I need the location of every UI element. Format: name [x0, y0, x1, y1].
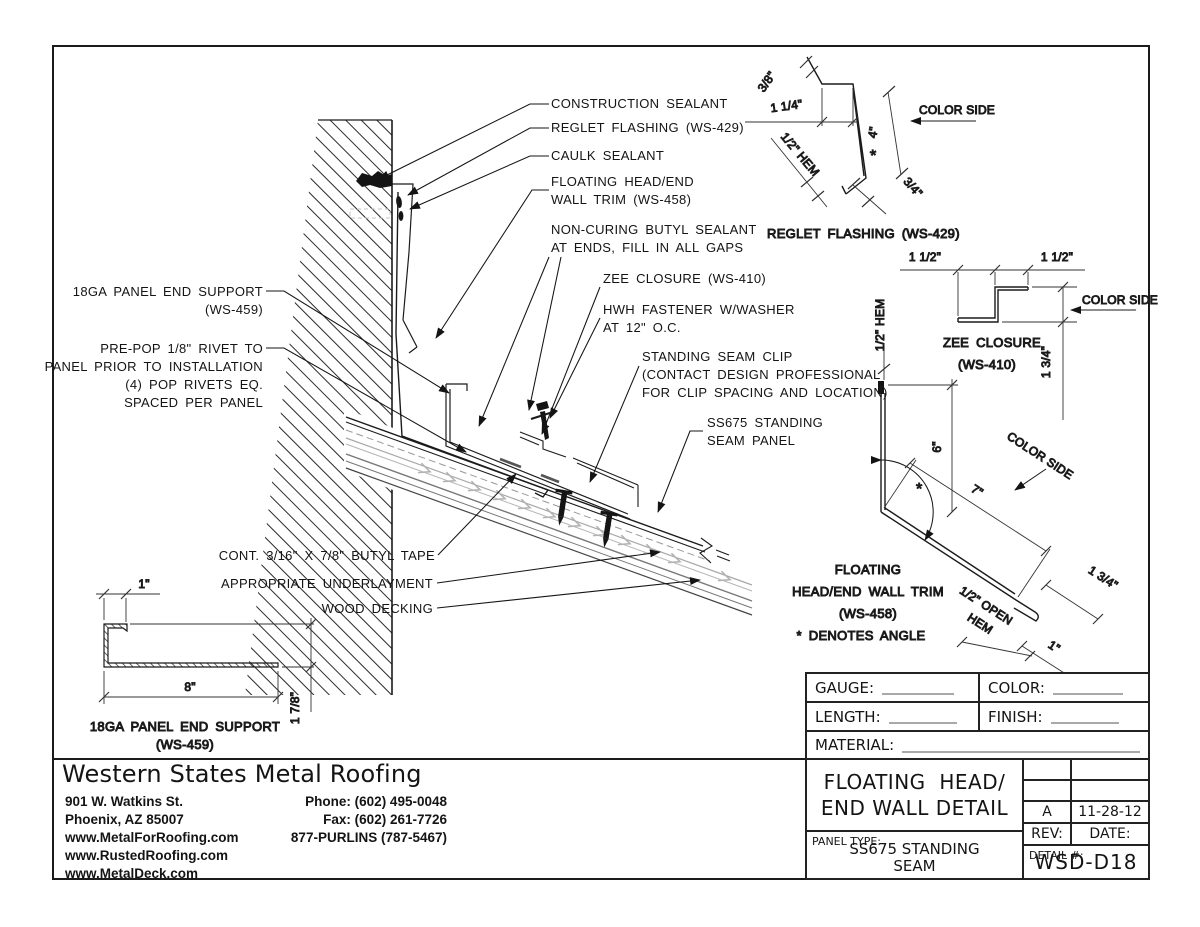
length-field: LENGTH:	[805, 701, 980, 732]
length-blank	[889, 709, 957, 724]
company-phone-block: Phone: (602) 495-0048 Fax: (602) 261-772…	[280, 793, 447, 847]
trim-detail-title-2: HEAD/END WALL TRIM	[792, 584, 944, 599]
panel-type-label: PANEL TYPE:	[812, 835, 881, 848]
callout-seam-panel-1: SS675 STANDING	[707, 415, 823, 430]
zee-dim-web: 1 3/4"	[1039, 346, 1053, 378]
company-website-3: www.MetalDeck.com	[65, 865, 239, 883]
callout-reglet-flashing: REGLET FLASHING (WS-429)	[551, 120, 744, 135]
reglet-detail-title: REGLET FLASHING (WS-429)	[767, 226, 960, 241]
reglet-dim-4: 4"	[865, 126, 881, 140]
material-blank	[902, 738, 1140, 753]
trim-detail: 1/2" HEM 6" 7" * COLOR SIDE 1 3/4" 1" 1/…	[792, 299, 1120, 683]
gauge-label: GAUGE:	[815, 679, 874, 697]
callout-butyl-sealant-2: AT ENDS, FILL IN ALL GAPS	[551, 240, 743, 255]
panel-top-line	[346, 417, 703, 546]
trim-detail-title-3: (WS-458)	[839, 606, 897, 621]
color-label: COLOR:	[988, 679, 1045, 697]
date-empty-cell-1	[1070, 758, 1150, 781]
callout-seam-clip-2: (CONTACT DESIGN PROFESSIONAL	[642, 367, 881, 382]
trim-asterisk: *	[916, 481, 922, 498]
support-dim-1-7-8: 1 7/8"	[288, 692, 302, 724]
zee-detail-title-1: ZEE CLOSURE	[943, 335, 1041, 350]
trim-dim-1-3-4: 1 3/4"	[1086, 563, 1121, 592]
length-label: LENGTH:	[815, 708, 881, 726]
trim-dim-7: 7"	[969, 482, 986, 500]
trim-detail-title-1: FLOATING	[835, 562, 901, 577]
callout-caulk-sealant: CAULK SEALANT	[551, 148, 664, 163]
rev-header-cell: REV:	[1022, 822, 1072, 846]
reglet-dim-3-4: 3/4"	[900, 175, 925, 201]
callout-labels: CONSTRUCTION SEALANT REGLET FLASHING (WS…	[45, 96, 888, 616]
reglet-dim-1-1-4: 1 1/4"	[770, 97, 804, 115]
callout-seam-clip-1: STANDING SEAM CLIP	[642, 349, 793, 364]
material-field: MATERIAL:	[805, 730, 1150, 760]
callout-rivet-1: PRE-POP 1/8" RIVET TO	[100, 341, 263, 356]
company-fax: Fax: (602) 261-7726	[280, 811, 447, 829]
support-detail-title-2: (WS-459)	[156, 737, 214, 752]
callout-floating-trim-2: WALL TRIM (WS-458)	[551, 192, 691, 207]
gauge-field: GAUGE:	[805, 672, 980, 703]
reglet-detail: 3/8" 1 1/4" 1/2" HEM 4" * 3/4" COLOR SID…	[745, 56, 995, 241]
callout-hwh-fastener-2: AT 12" O.C.	[603, 320, 681, 335]
callout-seam-panel-2: SEAM PANEL	[707, 433, 795, 448]
trim-color-side: COLOR SIDE	[1004, 429, 1075, 482]
drawing-title: FLOATING HEAD/ END WALL DETAIL	[805, 758, 1024, 832]
trim-dim-half-hem: 1/2" HEM	[873, 299, 887, 352]
zee-detail: 1 1/2" 1 1/2" 1 3/4" COLOR SIDE ZEE CLOS…	[900, 250, 1158, 420]
hwh-fastener	[531, 401, 553, 440]
callout-rivet-4: SPACED PER PANEL	[124, 395, 263, 410]
zee-closure-piece	[520, 432, 566, 457]
callout-construction-sealant: CONSTRUCTION SEALANT	[551, 96, 728, 111]
reglet-color-side: COLOR SIDE	[919, 103, 995, 117]
title-block: GAUGE: COLOR: LENGTH: FINISH: MATERIAL: …	[805, 672, 1150, 880]
panel-type-value-2: SEAM	[893, 858, 935, 875]
company-website-1: www.MetalForRoofing.com	[65, 829, 239, 847]
zee-detail-title-2: (WS-410)	[958, 357, 1016, 372]
callout-butyl-tape: CONT. 3/16" X 7/8" BUTYL TAPE	[219, 548, 435, 563]
callout-rivet-3: (4) POP RIVETS EQ.	[125, 377, 263, 392]
reglet-dim-3-8: 3/8"	[755, 69, 779, 95]
trim-detail-title-4: * DENOTES ANGLE	[797, 628, 926, 643]
panel-stub	[716, 550, 730, 561]
rev-value-cell: A	[1022, 800, 1072, 824]
detail-number-field: DETAIL #: WSD-D18	[1022, 844, 1150, 880]
company-name: Western States Metal Roofing	[62, 760, 422, 788]
company-website-2: www.RustedRoofing.com	[65, 847, 239, 865]
color-field: COLOR:	[978, 672, 1150, 703]
drawing-title-line-2: END WALL DETAIL	[821, 795, 1008, 821]
rev-empty-cell-2	[1022, 779, 1072, 802]
drawing-sheet: CONSTRUCTION SEALANT REGLET FLASHING (WS…	[0, 0, 1200, 927]
color-blank	[1053, 680, 1123, 695]
rev-empty-cell-1	[1022, 758, 1072, 781]
seam-dash-line	[346, 430, 710, 561]
caulk-blob-1	[395, 196, 402, 209]
callout-zee-closure: ZEE CLOSURE (WS-410)	[603, 271, 766, 286]
zee-dim-right: 1 1/2"	[1041, 250, 1073, 264]
material-label: MATERIAL:	[815, 736, 894, 754]
callout-underlayment: APPROPRIATE UNDERLAYMENT	[221, 576, 433, 591]
trim-dim-6: 6"	[930, 441, 944, 452]
company-address-block: 901 W. Watkins St. Phoenix, AZ 85007 www…	[65, 793, 239, 883]
callout-end-support-2: (WS-459)	[205, 302, 263, 317]
callout-hwh-fastener-1: HWH FASTENER W/WASHER	[603, 302, 795, 317]
finish-field: FINISH:	[978, 701, 1150, 732]
support-dim-8: 8"	[184, 680, 195, 694]
finish-label: FINISH:	[988, 708, 1043, 726]
company-address-line-1: 901 W. Watkins St.	[65, 793, 239, 811]
date-empty-cell-2	[1070, 779, 1150, 802]
callout-wood-decking: WOOD DECKING	[322, 601, 433, 616]
panel-type-field: PANEL TYPE: SS675 STANDING SEAM	[805, 830, 1024, 880]
date-header-cell: DATE:	[1070, 822, 1150, 846]
callout-butyl-sealant-1: NON-CURING BUTYL SEALANT	[551, 222, 757, 237]
caulk-blob-2	[399, 211, 404, 221]
gauge-blank	[882, 680, 954, 695]
callout-end-support-1: 18GA PANEL END SUPPORT	[73, 284, 263, 299]
zee-color-side: COLOR SIDE	[1082, 293, 1158, 307]
finish-blank	[1051, 709, 1119, 724]
company-toll-free: 877-PURLINS (787-5467)	[280, 829, 447, 847]
company-address-line-2: Phoenix, AZ 85007	[65, 811, 239, 829]
zee-dim-left: 1 1/2"	[909, 250, 941, 264]
drawing-title-line-1: FLOATING HEAD/	[824, 769, 1006, 795]
callout-seam-clip-3: FOR CLIP SPACING AND LOCATION)	[642, 385, 888, 400]
company-phone: Phone: (602) 495-0048	[280, 793, 447, 811]
callout-rivet-2: PANEL PRIOR TO INSTALLATION	[45, 359, 263, 374]
reglet-asterisk: *	[868, 149, 886, 158]
detail-number-label: DETAIL #:	[1029, 849, 1084, 862]
date-value-cell: 11-28-12	[1070, 800, 1150, 824]
callout-floating-trim-1: FLOATING HEAD/END	[551, 174, 694, 189]
trim-dim-1: 1"	[1046, 638, 1063, 656]
support-dim-1: 1"	[138, 577, 149, 591]
support-detail-title-1: 18GA PANEL END SUPPORT	[90, 719, 280, 734]
